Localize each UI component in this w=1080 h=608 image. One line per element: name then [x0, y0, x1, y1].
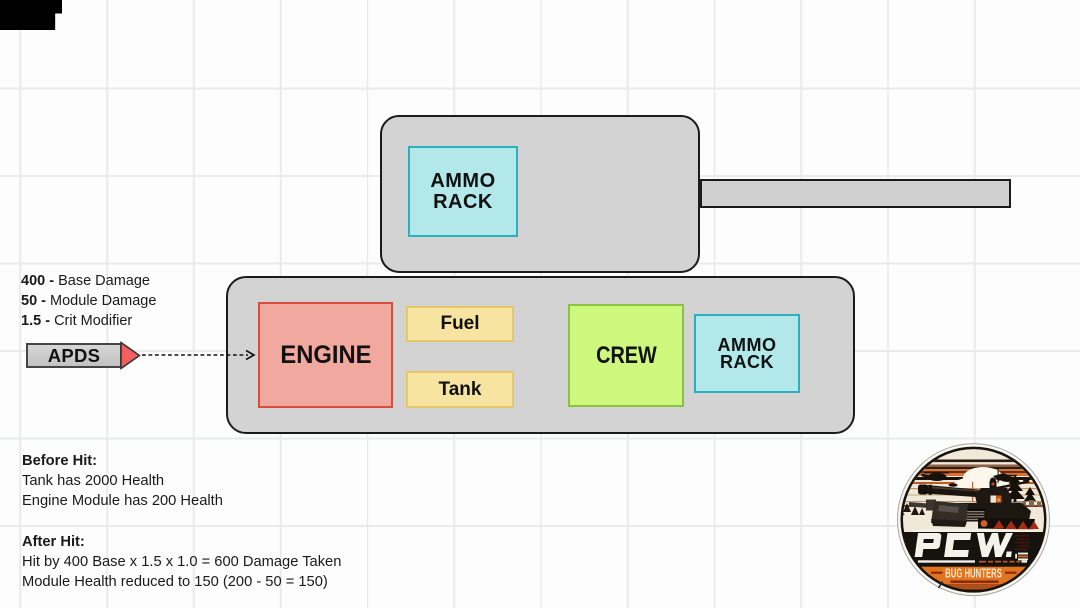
- svg-text:BUG HUNTERS: BUG HUNTERS: [945, 568, 1002, 581]
